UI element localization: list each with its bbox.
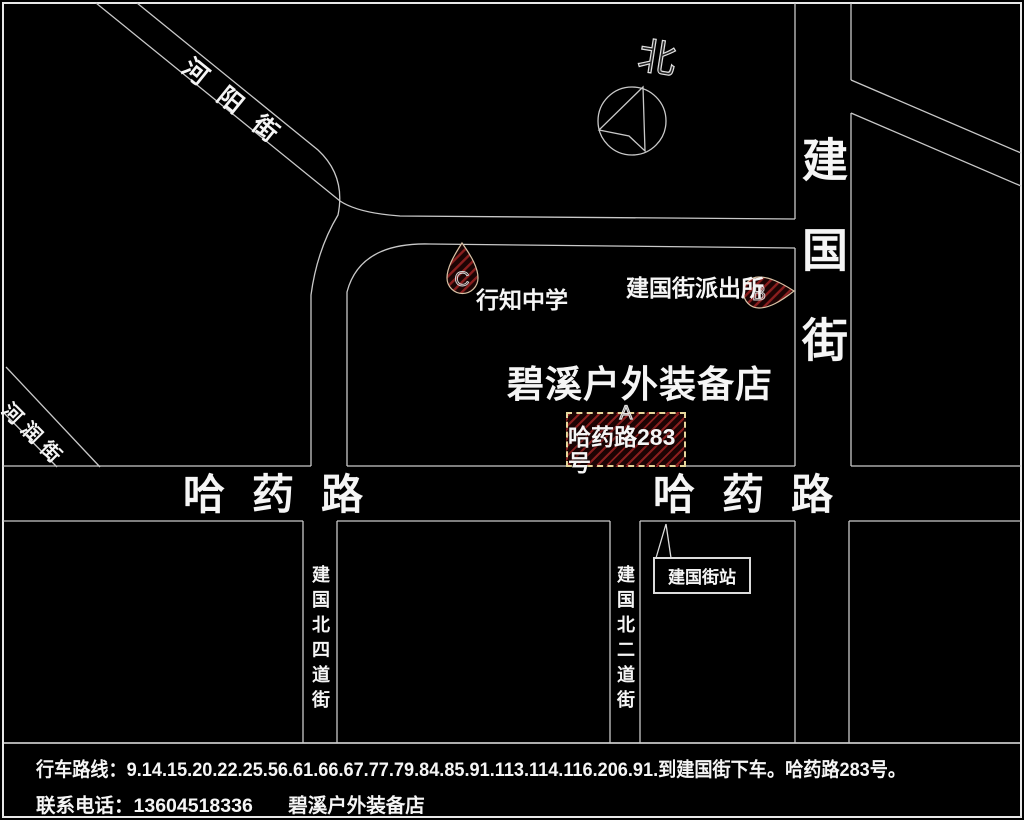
street-label-hayao-west: 哈药路: [183, 474, 390, 516]
street-label-jianguo-n4th: 建国北四道街: [311, 565, 329, 715]
road-heyang-north-line: [96, 3, 795, 219]
street-label-jianguo-n2nd: 建国北二道街: [616, 565, 634, 715]
pin-c-letter: C: [454, 268, 469, 291]
map-frame: [3, 3, 1021, 817]
map-canvas: C B: [0, 0, 1024, 820]
poi-label-school: 行知中学: [476, 289, 568, 312]
contact-phone: 联系电话：13604518336: [36, 795, 253, 817]
address-box: A 哈药路283号: [566, 412, 686, 467]
north-arrow-icon: [599, 87, 645, 151]
route-info-line: 行车路线：9.14.15.20.22.25.56.61.66.67.77.79.…: [36, 753, 906, 782]
map-poster: C B 北 河阳街 河润街 建国街 哈药路 哈药路 建国北四道街 建国北二道街 …: [0, 0, 1024, 820]
street-label-jianguo: 建国街: [799, 136, 845, 406]
road-northeast-diagonal-line2: [851, 113, 1021, 186]
road-heyang-south-line: [137, 3, 340, 466]
station-callout-label: 建国街站: [668, 563, 736, 588]
street-label-hayao-east: 哈药路: [653, 474, 860, 516]
address-text: 哈药路283号: [568, 424, 684, 476]
store-title: 碧溪户外装备店: [507, 366, 773, 403]
contact-line: 联系电话：13604518336 碧溪户外装备店: [36, 789, 425, 818]
poi-label-police: 建国街派出所: [626, 277, 764, 300]
road-jianguo-south: [795, 521, 849, 743]
compass-north-label: 北: [635, 37, 678, 80]
contact-store-name: 碧溪户外装备店: [288, 795, 425, 817]
station-callout: 建国街站: [653, 557, 751, 594]
station-callout-leader: [656, 524, 671, 558]
pin-a-letter: A: [620, 404, 633, 424]
road-northeast-diagonal-line1: [851, 80, 1021, 153]
